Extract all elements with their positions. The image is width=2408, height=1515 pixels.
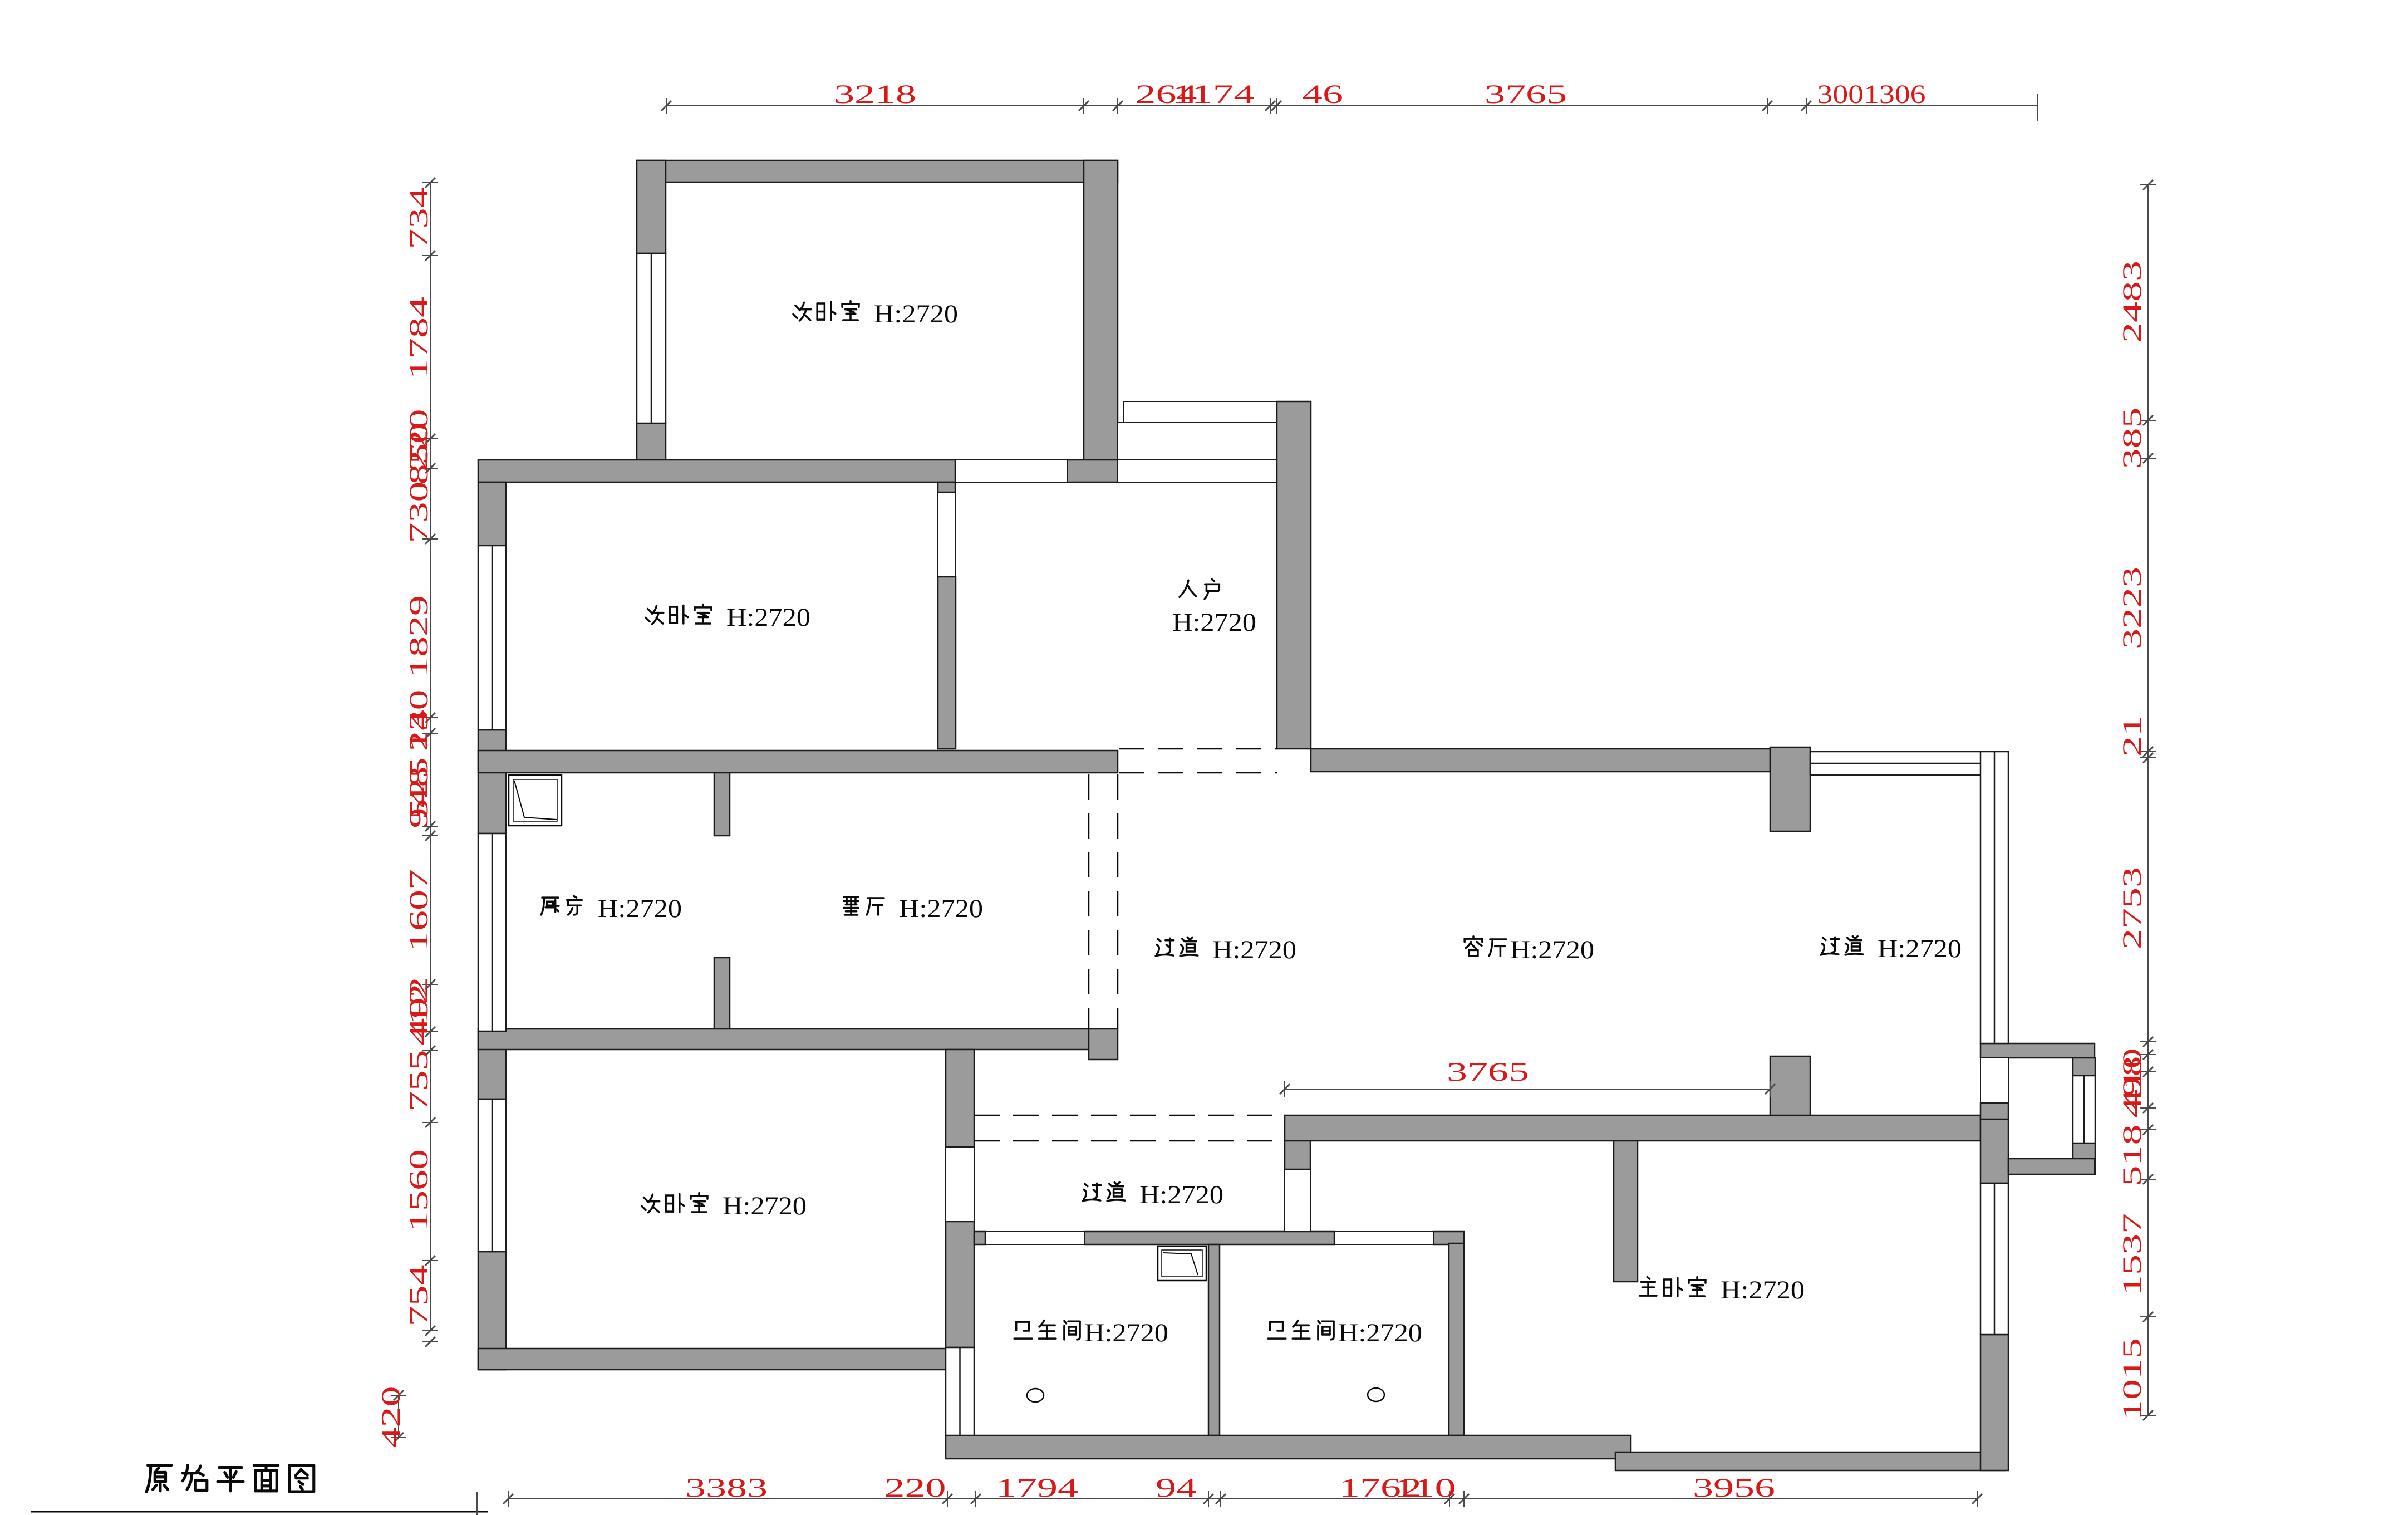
svg-text:420: 420 [376,1386,406,1448]
svg-text:H:2720: H:2720 [1510,935,1594,964]
svg-text:498: 498 [2117,1056,2147,1118]
svg-text:385: 385 [2117,408,2147,469]
svg-text:948: 948 [404,767,434,828]
svg-text:3383: 3383 [685,1473,768,1503]
svg-text:3765: 3765 [1447,1057,1529,1087]
svg-text:1794: 1794 [996,1473,1078,1503]
svg-text:1607: 1607 [404,869,434,952]
svg-text:1560: 1560 [404,1149,434,1232]
svg-text:3218: 3218 [834,80,916,109]
svg-text:220: 220 [884,1473,946,1503]
svg-text:850: 850 [404,423,434,485]
svg-text:412: 412 [404,984,434,1046]
svg-text:734: 734 [404,188,434,249]
svg-text:H:2720: H:2720 [1878,934,1962,963]
svg-text:730: 730 [404,482,434,543]
svg-text:H:2720: H:2720 [723,1192,807,1220]
svg-text:2753: 2753 [2117,867,2147,949]
svg-text:3223: 3223 [2117,567,2147,649]
svg-text:3001306: 3001306 [1817,80,1926,109]
svg-text:46: 46 [1302,80,1343,109]
svg-text:H:2720: H:2720 [726,603,810,632]
svg-text:14: 14 [404,710,434,751]
svg-text:1784: 1784 [404,297,434,379]
svg-text:H:2720: H:2720 [1338,1318,1422,1347]
svg-text:H:2720: H:2720 [598,894,682,923]
svg-text:3765: 3765 [1485,80,1567,109]
svg-text:H:2720: H:2720 [1721,1276,1805,1305]
svg-text:3956: 3956 [1693,1473,1775,1503]
svg-text:H:2720: H:2720 [1172,608,1256,637]
svg-text:21: 21 [2117,715,2147,757]
svg-text:1174: 1174 [1172,80,1255,109]
svg-text:H:2720: H:2720 [899,894,983,923]
svg-text:94: 94 [1156,1473,1197,1503]
svg-text:1015: 1015 [2117,1338,2147,1420]
svg-text:754: 754 [404,1265,434,1327]
svg-text:H:2720: H:2720 [874,300,958,329]
svg-text:1537: 1537 [2117,1213,2147,1296]
svg-text:H:2720: H:2720 [1084,1318,1168,1347]
svg-text:H:2720: H:2720 [1212,935,1296,964]
svg-text:110: 110 [1394,1473,1456,1503]
svg-text:1829: 1829 [404,595,434,678]
svg-text:2483: 2483 [2117,261,2147,343]
svg-text:755: 755 [404,1050,434,1112]
svg-text:518: 518 [2117,1125,2147,1186]
svg-text:H:2720: H:2720 [1139,1180,1223,1209]
